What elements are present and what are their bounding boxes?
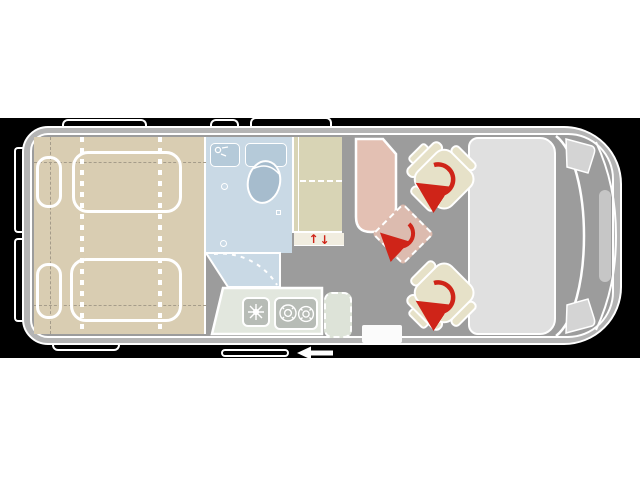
bathroom-shelf bbox=[245, 143, 287, 167]
bed-mattress-upper bbox=[72, 151, 182, 213]
shower-drain-mark bbox=[221, 183, 228, 190]
kitchen-sink bbox=[242, 297, 270, 327]
bathroom-fitting-mark bbox=[276, 210, 281, 215]
sliding-door-outline bbox=[221, 349, 289, 357]
step-up-arrow-icon: ↑ bbox=[308, 234, 318, 245]
step-down-arrow-icon: ↓ bbox=[320, 235, 330, 246]
kitchen-stove bbox=[274, 297, 318, 330]
entry-door-step bbox=[362, 325, 402, 343]
bathroom-washbasin bbox=[210, 143, 240, 167]
bed-mattress-lower bbox=[70, 258, 182, 322]
wardrobe-shelf-dash-line bbox=[300, 180, 342, 182]
counter-extension-flap bbox=[324, 292, 352, 338]
wardrobe-divider-line bbox=[298, 137, 299, 233]
bed-pillow-upper bbox=[36, 156, 62, 208]
side-window-outline-bottom bbox=[52, 343, 120, 351]
wardrobe-cabinet bbox=[292, 137, 342, 233]
floor-plan-figure: ↑ ↓ bbox=[0, 0, 640, 480]
shower-drain-mark-2 bbox=[220, 240, 227, 247]
bed-pillow-lower bbox=[36, 263, 62, 319]
entry-step-strip: ↑ ↓ bbox=[294, 233, 344, 246]
